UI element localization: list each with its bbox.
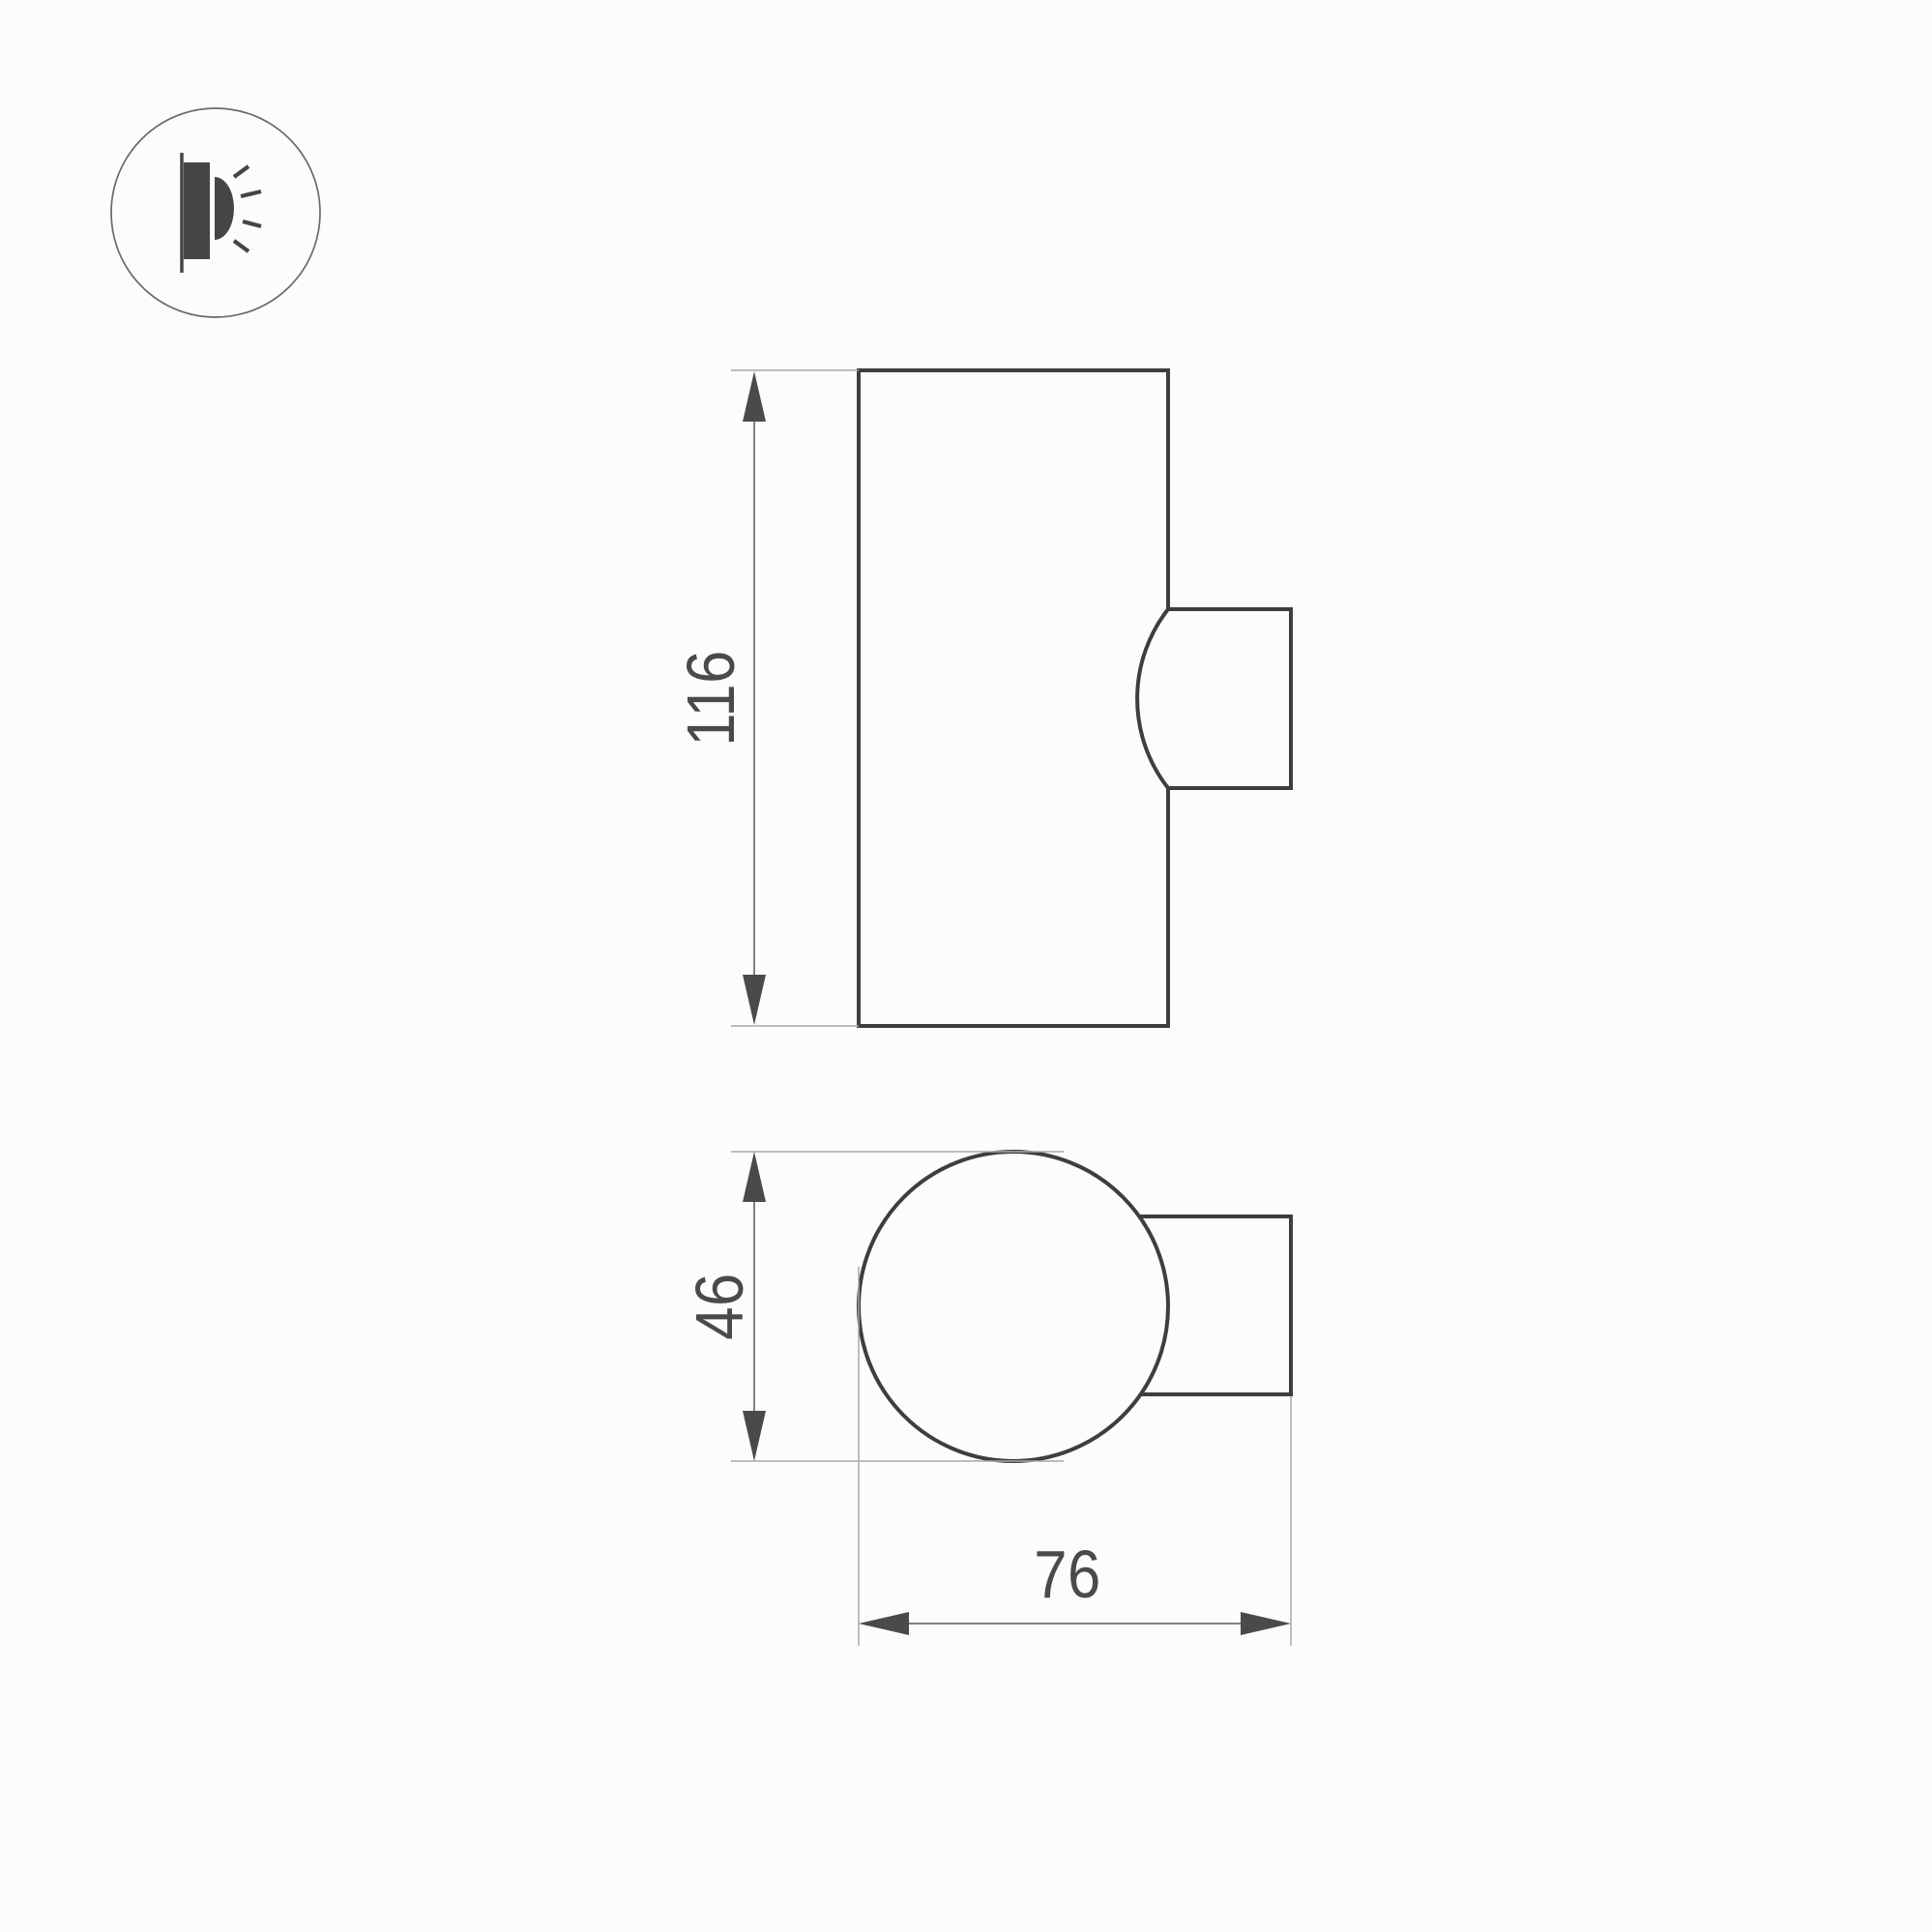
- arrow-up-icon: [743, 371, 766, 422]
- front-view-mount: [1137, 609, 1291, 788]
- arrow-right-icon: [1241, 1612, 1291, 1635]
- dimension-top-height: 46: [681, 1152, 1064, 1461]
- dimension-label: 46: [681, 1273, 757, 1339]
- dimension-drawing: 116 46 76: [0, 0, 1932, 1932]
- dimension-top-width: 76: [859, 1267, 1291, 1646]
- wall-light-icon: [182, 153, 261, 273]
- top-view: [859, 1152, 1291, 1461]
- arrow-down-icon: [743, 975, 766, 1025]
- arrow-left-icon: [859, 1612, 909, 1635]
- front-view: [859, 370, 1291, 1026]
- light-rays-icon: [234, 166, 261, 251]
- arrow-down-icon: [743, 1411, 766, 1461]
- dimension-front-height: 116: [672, 370, 859, 1026]
- lamp-body-shape: [184, 162, 210, 259]
- top-view-mount: [1139, 1216, 1291, 1394]
- legend-badge: [111, 108, 320, 317]
- lamp-lens-shape: [215, 177, 234, 240]
- front-view-body: [859, 370, 1168, 1026]
- top-view-body-circle: [859, 1152, 1168, 1461]
- arrow-up-icon: [743, 1152, 766, 1202]
- dimension-label: 76: [1034, 1536, 1100, 1612]
- drawing-canvas: 116 46 76: [0, 0, 1932, 1932]
- dimension-label: 116: [672, 650, 748, 746]
